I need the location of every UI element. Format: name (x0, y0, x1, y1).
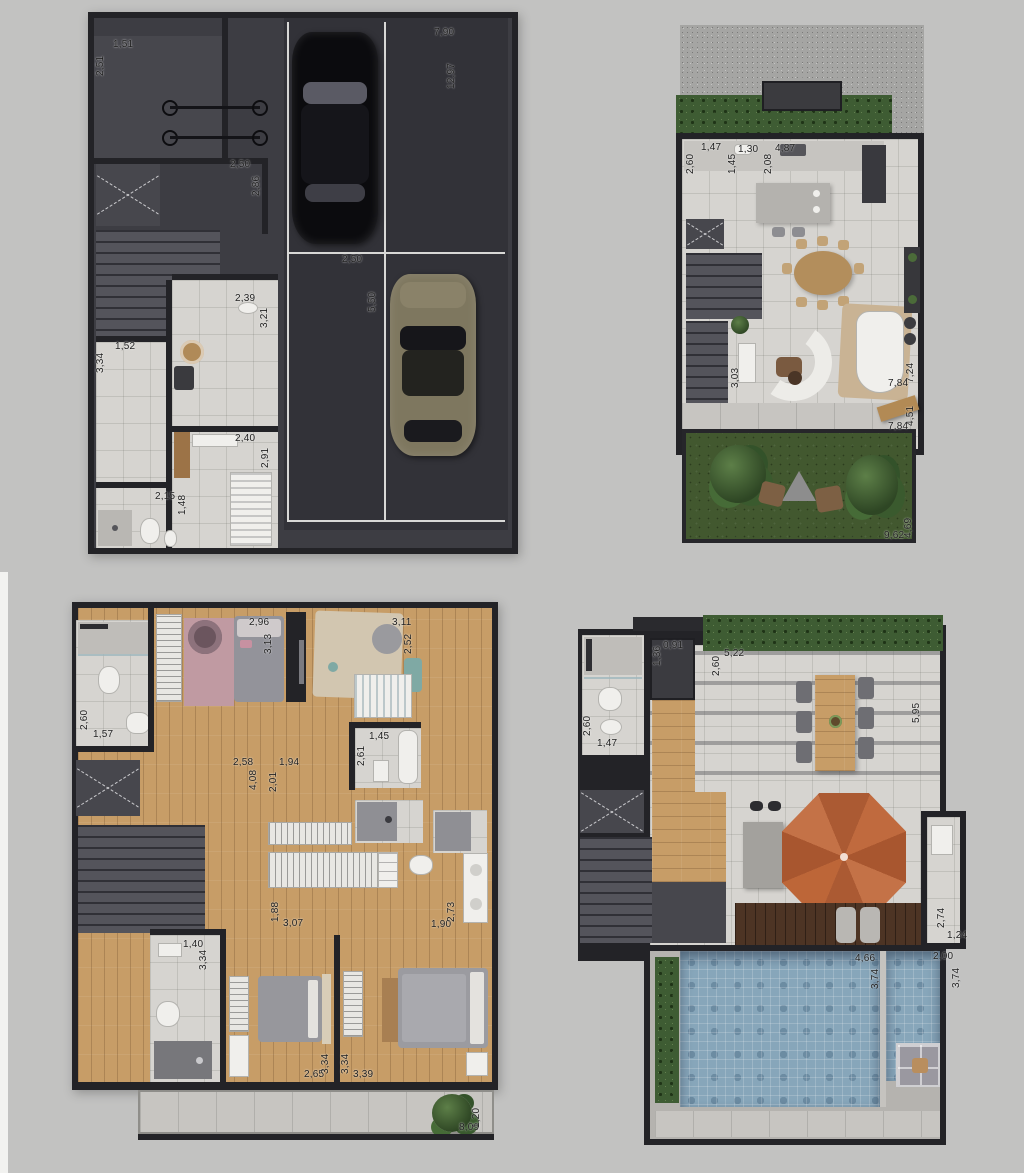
dim-label: 3,74 (871, 969, 881, 989)
dim-label: 2,08 (764, 154, 774, 174)
shelf (192, 434, 238, 447)
dim-label: 2,15 (155, 492, 175, 502)
dim-label: 3,21 (260, 308, 270, 328)
round-table (180, 340, 204, 364)
dining-chair (817, 300, 828, 310)
dim-label: 3,03 (731, 368, 741, 388)
wardrobe (156, 614, 182, 702)
dining-chair (796, 297, 807, 307)
parking-line (384, 22, 386, 522)
plan-bedrooms-level: 1,57 2,60 2,96 3,13 3,11 2,52 1,45 2,61 … (72, 602, 498, 1144)
dim-label: 5,22 (724, 649, 744, 659)
dim-label: 1,47 (597, 739, 617, 749)
armchair (372, 624, 402, 654)
dim-label: 1,48 (178, 495, 188, 515)
dining-chair (858, 677, 874, 699)
pergola-hedge (703, 615, 943, 651)
elevator-shaft-x-icon (686, 219, 724, 249)
spa-feature-grid (896, 1043, 940, 1087)
bathtub (398, 730, 418, 784)
dim-label: 2,01 (269, 772, 279, 792)
wall (220, 935, 226, 1082)
double-vanity (463, 853, 488, 923)
dim-label: 2,60 (583, 716, 593, 736)
dim-label: 3,13 (264, 634, 274, 654)
dim-label: 1,30 (738, 145, 758, 155)
dim-label: 1,47 (701, 143, 721, 153)
bathroom-4 (433, 810, 487, 853)
wardrobe (343, 971, 363, 1037)
dim-label: 3,74 (952, 968, 962, 988)
shower-area (584, 637, 642, 675)
dim-label: 2,39 (235, 294, 255, 304)
nightstand (466, 1052, 488, 1076)
island-sink (812, 205, 821, 214)
dim-label: 2,60 (712, 656, 722, 676)
dim-label: 0,91 (663, 641, 683, 651)
black-car (292, 32, 378, 244)
dim-label: 4,87 (775, 144, 795, 154)
potted-plant-icon (731, 316, 749, 334)
car-windshield (303, 82, 367, 104)
potted-plant-icon (908, 295, 917, 304)
refrigerator (862, 145, 886, 203)
pool-walk-strip (655, 1111, 940, 1137)
sink (470, 898, 482, 910)
dim-label: 3,39 (353, 1070, 373, 1080)
dining-chair (796, 711, 812, 733)
bathroom-3 (355, 800, 423, 843)
wood-walkway (652, 700, 695, 792)
dim-label: 2,86 (252, 176, 262, 196)
dim-label: 2,51 (96, 56, 106, 76)
dim-label: 1,36 (653, 646, 663, 666)
bed-blanket (402, 974, 466, 1042)
dim-label: 1,45 (369, 732, 389, 742)
toilet (140, 518, 160, 544)
bed-bench (382, 978, 398, 1042)
garden-chair (814, 485, 844, 513)
shower-area (98, 510, 132, 546)
dining-chair (858, 707, 874, 729)
dim-label: 2,91 (261, 448, 271, 468)
dim-label: 3,11 (392, 618, 412, 628)
dim-label: 2,96 (249, 618, 269, 628)
planter-box (762, 81, 842, 111)
side-table (904, 317, 916, 329)
dim-label: 7,84 (888, 379, 908, 389)
shower-drain (80, 624, 108, 629)
dim-label: 1,57 (93, 730, 113, 740)
bar-stool (792, 227, 805, 237)
dresser (229, 1035, 249, 1077)
dining-chair (817, 236, 828, 246)
dim-label: 3,34 (321, 1054, 331, 1074)
side-table (788, 371, 802, 385)
dim-label: 1,88 (271, 902, 281, 922)
swimming-pool (680, 951, 880, 1107)
wall (138, 1134, 494, 1140)
dim-label: 3,34 (96, 353, 106, 373)
lounge-chair (126, 712, 150, 734)
bed-double (398, 968, 488, 1048)
toilet (156, 1001, 180, 1027)
dim-label: 1,52 (115, 342, 135, 352)
parking-line (287, 22, 289, 522)
centerpiece-bowl (829, 715, 842, 728)
dim-label: 1,51 (113, 40, 133, 50)
page-edge (0, 572, 8, 1173)
bed-pillows (470, 972, 484, 1044)
bed-double (234, 616, 284, 702)
car-roof (402, 350, 464, 396)
potted-plant-icon (908, 253, 917, 262)
pool-hedge (655, 957, 679, 1103)
dim-label: 2,40 (235, 434, 255, 444)
shower-drain (112, 525, 118, 531)
dim-label: 1,40 (183, 940, 203, 950)
wall (76, 746, 154, 752)
dim-label: 3,07 (283, 919, 303, 929)
car-rear-window (404, 420, 462, 442)
wall (172, 274, 278, 280)
bush-icon (710, 445, 766, 503)
dim-label: 1,94 (279, 758, 299, 768)
bicycle-icon (162, 128, 268, 148)
dim-label: 2,61 (357, 746, 367, 766)
dining-chair (796, 741, 812, 763)
wall (262, 158, 268, 234)
car-rear-window (305, 184, 365, 202)
dim-label: 4,69 (904, 518, 914, 538)
media-wall (904, 247, 920, 313)
outdoor-bar (743, 822, 783, 888)
headboard (322, 974, 331, 1044)
car-roof (301, 104, 369, 184)
elevator-shaft-x-icon (580, 790, 644, 833)
dim-label: 2,74 (937, 908, 947, 928)
shower-area (154, 1041, 212, 1079)
dim-label: 7,84 (888, 422, 908, 432)
parking-line (287, 252, 505, 254)
bed-pillows (308, 980, 318, 1038)
dining-chair (796, 681, 812, 703)
parking-line (287, 520, 505, 522)
dim-label: 7,90 (434, 28, 454, 38)
dim-label: 2,60 (686, 154, 696, 174)
bicycle-icon (162, 98, 268, 118)
elevator-shaft-x-icon (96, 164, 160, 226)
island-sink (812, 189, 821, 198)
kitchen-island (756, 183, 830, 223)
dim-label: 1,24 (947, 931, 967, 941)
slippers (750, 801, 763, 811)
dining-chair (838, 240, 849, 250)
appliance (174, 366, 194, 390)
shower-drain (586, 639, 592, 671)
closet-shelf (378, 852, 398, 888)
staircase (78, 825, 205, 933)
wall (349, 728, 355, 790)
shower-glass (584, 677, 642, 679)
floorplan-sheet: { "document": { "type": "architectural-f… (0, 0, 1024, 1173)
bidet (164, 530, 177, 547)
sink (470, 864, 482, 876)
wall (72, 1082, 498, 1090)
elevator-shaft-x-icon (76, 760, 140, 816)
bathroom-roof (582, 635, 644, 755)
toilet (98, 666, 120, 694)
sink (600, 719, 622, 735)
stair-landing (652, 882, 726, 943)
toilet (409, 855, 433, 875)
pergola-beam (633, 617, 713, 631)
bar-stool (772, 227, 785, 237)
bed-double (258, 976, 322, 1042)
staircase-lower (686, 321, 728, 403)
side-table (904, 333, 916, 345)
dining-chair (854, 263, 864, 274)
staircase (580, 837, 652, 943)
shower-drain (196, 1057, 203, 1064)
dim-label: 3,34 (341, 1054, 351, 1074)
wood-walkway (652, 792, 726, 882)
dim-label: 2,00 (933, 952, 953, 962)
dim-label: 12,97 (447, 63, 457, 89)
plan-garage-level: 1,51 2,51 2,50 2,86 7,90 12,97 2,50 5,50… (88, 12, 518, 554)
pouf (188, 620, 222, 654)
wall (166, 280, 172, 548)
bench (931, 825, 953, 855)
slippers (768, 801, 781, 811)
accent-pillow (240, 640, 252, 648)
dining-chair (782, 263, 792, 274)
bathroom-5 (150, 935, 220, 1082)
dim-label: 2,52 (404, 634, 414, 654)
dim-label: 4,66 (855, 954, 875, 964)
dim-label: 1,45 (728, 154, 738, 174)
gold-car (390, 274, 476, 456)
dim-label: 2,60 (80, 710, 90, 730)
dining-chair (796, 239, 807, 249)
plan-living-level: 1,47 2,60 1,30 1,45 4,87 2,08 3,03 7,24 … (676, 25, 924, 549)
shower-glass (78, 654, 148, 656)
shower-area (435, 812, 471, 851)
wardrobe (229, 976, 249, 1032)
fireplace-wall (286, 612, 306, 702)
car-hood (400, 282, 466, 308)
dim-label: 9,62 (884, 531, 904, 541)
closet-wardrobe (268, 852, 378, 888)
sculpture (912, 1058, 928, 1073)
toy (328, 662, 338, 672)
dim-label: 4,08 (249, 770, 259, 790)
toilet (598, 687, 622, 711)
dining-chair (858, 737, 874, 759)
dim-label: 5,50 (368, 292, 378, 312)
dim-label: 2,58 (233, 758, 253, 768)
wood-bench (174, 432, 190, 478)
dining-table (794, 251, 852, 295)
wall (96, 482, 166, 488)
vanity (158, 943, 182, 957)
dim-label: 2,50 (342, 255, 362, 265)
shower-drain (385, 816, 392, 823)
dim-label: 3,34 (199, 950, 209, 970)
plan-rooftop-level: 0,91 1,36 5,22 2,60 5,95 1,47 2,60 2,74 … (578, 615, 966, 1155)
dim-label: 5,95 (912, 703, 922, 723)
crib (354, 674, 412, 718)
lounger (860, 907, 880, 943)
dim-label: 1,20 (472, 1108, 482, 1128)
dim-label: 2,73 (447, 902, 457, 922)
single-bed (230, 472, 272, 546)
sink (373, 760, 389, 782)
dim-label: 2,50 (230, 160, 250, 170)
staircase (686, 253, 762, 319)
lounger (836, 907, 856, 943)
car-windshield (400, 326, 466, 350)
closet-wardrobe (268, 822, 352, 845)
fireplace-panel (299, 640, 304, 684)
bush-icon (846, 455, 898, 515)
wall (148, 608, 154, 748)
